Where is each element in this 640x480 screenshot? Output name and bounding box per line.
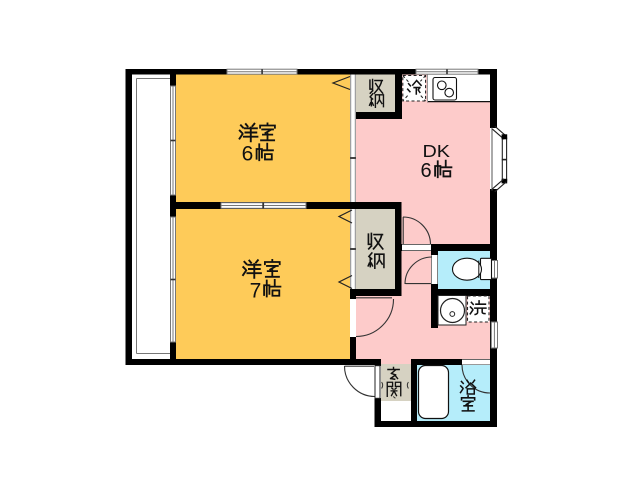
svg-text:6: 6 <box>242 142 254 165</box>
svg-text:DK: DK <box>423 141 451 161</box>
svg-text:7: 7 <box>250 280 262 303</box>
svg-text:6: 6 <box>420 160 431 182</box>
